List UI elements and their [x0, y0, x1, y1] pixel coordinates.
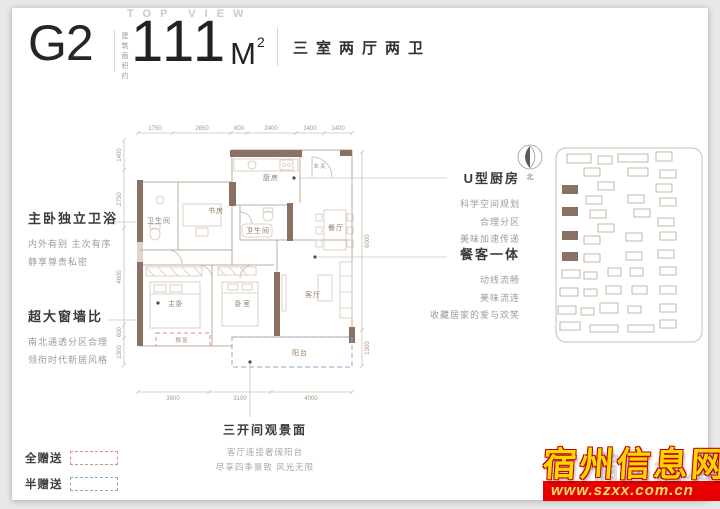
- room-label-master: 主卧: [168, 299, 184, 308]
- floorplan-brochure-page: TOP VIEW G2 建筑面积约 111M2 三室两厅两卫 主卧独立卫浴 内外…: [0, 0, 720, 509]
- dim-label: 1400: [331, 126, 345, 132]
- legend-label: 全赠送: [25, 450, 63, 466]
- room-partitions: [138, 150, 352, 346]
- half-gift-swatch: [70, 477, 118, 491]
- legend-full-gift: 全赠送: [25, 450, 118, 466]
- watermark-szxx: 宿州信息网 宿州信息网 www.szxx.com.cn: [543, 437, 720, 501]
- room-label-baywindow: 飘窗: [175, 336, 188, 344]
- dim-label: 1300: [365, 341, 371, 355]
- dim-label: 600: [117, 326, 123, 337]
- compass-north-label: 北: [527, 173, 534, 181]
- dim-label: 1300: [117, 345, 123, 359]
- room-label-dining: 餐厅: [328, 223, 344, 232]
- room-label-bedroom2: 卧室: [235, 299, 251, 308]
- watermark-site-name: 宿州信息网: [541, 437, 720, 486]
- room-label-entry: 玄关: [313, 162, 326, 170]
- annotation-line: 客厅连接奢阔阳台: [185, 445, 345, 460]
- header-divider: [277, 27, 278, 66]
- dim-label: 3500: [166, 396, 180, 402]
- dim-label: 1750: [148, 126, 162, 132]
- dim-label: 2850: [195, 126, 209, 132]
- load-bearing-walls: [137, 150, 355, 346]
- dim-label: 1400: [117, 148, 123, 162]
- dimension-lines: [122, 131, 364, 394]
- dim-label: 1400: [303, 126, 317, 132]
- full-gift-swatch: [70, 451, 118, 465]
- dim-label: 2400: [264, 126, 278, 132]
- dim-label: 3100: [233, 396, 247, 402]
- floorplan-drawing: 1750 2850 800 2400 1400 1400 1400 2750 4…: [95, 118, 455, 420]
- room-label-bath2: 卫生间: [246, 226, 270, 235]
- annotation-view-bays: 三开间观景面 客厅连接奢阔阳台 尽享四季景致 风光无限: [185, 421, 345, 476]
- layout-description: 三室两厅两卫: [293, 37, 431, 58]
- room-label-balcony: 阳台: [292, 348, 308, 357]
- area-unit-sup: 2: [257, 35, 265, 49]
- annotation-title: 三开间观景面: [185, 421, 345, 438]
- annotation-line: 尽享四季景致 风光无限: [185, 460, 345, 475]
- room-label-living: 客厅: [305, 290, 321, 299]
- area-note: 建筑面积约: [119, 32, 129, 82]
- legend-label: 半赠送: [25, 476, 63, 492]
- unit-code: G2: [28, 18, 93, 68]
- dimension-labels: 1750 2850 800 2400 1400 1400 1400 2750 4…: [117, 126, 371, 402]
- dim-label: 800: [234, 126, 245, 132]
- dim-label: 6000: [365, 234, 371, 248]
- room-label-kitchen: 厨房: [263, 173, 279, 182]
- compass-icon: 北: [518, 145, 542, 181]
- room-label-bath1: 卫生间: [147, 216, 171, 225]
- header-divider: [114, 30, 115, 72]
- area-figure: 111M2: [131, 13, 265, 71]
- door-swings: [168, 157, 332, 279]
- dim-label: 4000: [304, 396, 318, 402]
- legend-half-gift: 半赠送: [25, 476, 118, 492]
- area-value: 111: [131, 13, 228, 71]
- area-unit: M: [230, 38, 256, 69]
- dim-label: 4600: [117, 270, 123, 284]
- siteplan: 北: [500, 135, 715, 350]
- dim-label: 2750: [117, 192, 123, 206]
- room-label-study: 书房: [208, 206, 224, 215]
